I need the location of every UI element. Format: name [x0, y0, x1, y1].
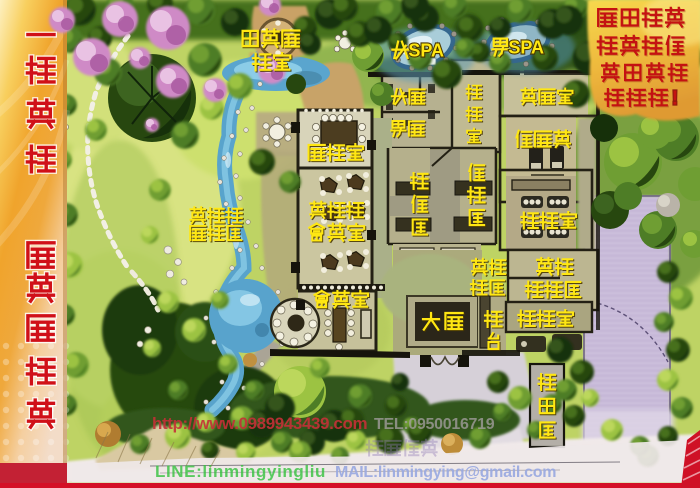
svg-text:LINE:linmingyingliu: LINE:linmingyingliu — [155, 462, 326, 481]
svg-text:TEL:0950016719: TEL:0950016719 — [374, 416, 495, 433]
svg-text:SPA: SPA — [508, 38, 544, 58]
svg-text:!: ! — [672, 88, 679, 110]
svg-text:MAIL:linmingying@gmail.com: MAIL:linmingying@gmail.com — [335, 464, 556, 481]
svg-text:http://www.0989943439.com: http://www.0989943439.com — [152, 414, 367, 433]
svg-text:SPA: SPA — [408, 41, 444, 61]
